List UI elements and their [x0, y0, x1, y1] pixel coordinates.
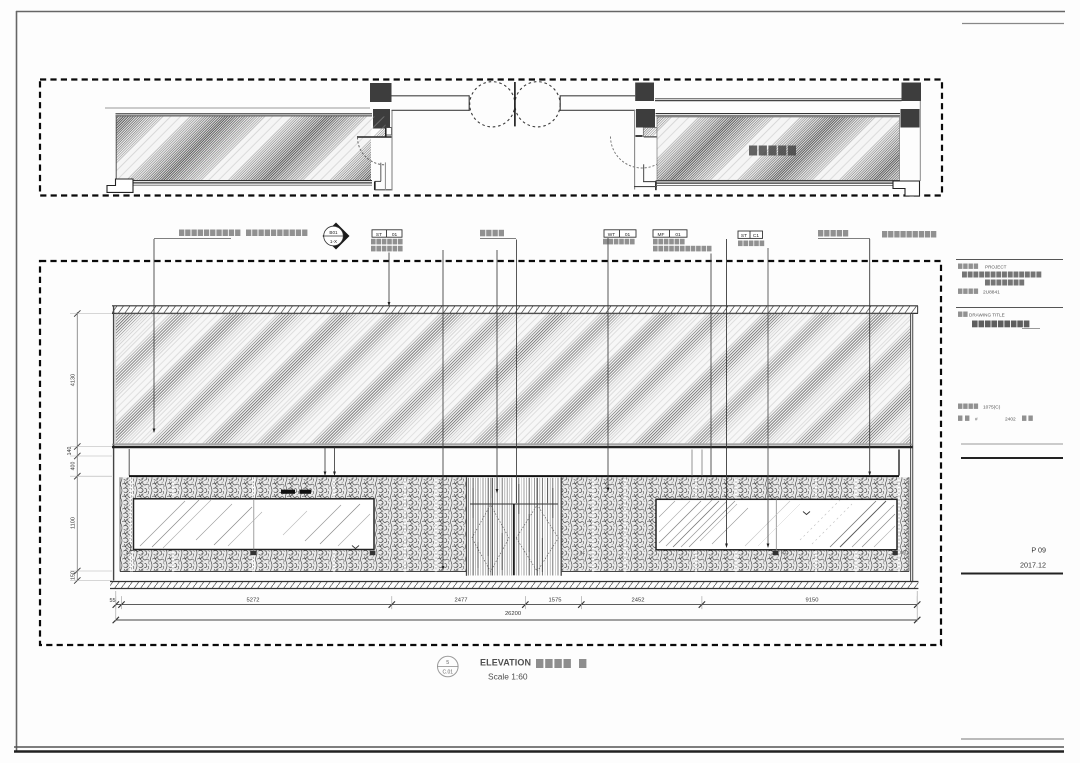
svg-text:C.01: C.01 [443, 670, 454, 676]
svg-text:C1: C1 [753, 233, 759, 239]
svg-text:01: 01 [392, 232, 398, 238]
svg-text:ST: ST [741, 233, 747, 239]
svg-text:150: 150 [71, 571, 77, 580]
svg-text:DRAWING TITLE: DRAWING TITLE [969, 312, 1005, 317]
svg-text:Scale 1:60: Scale 1:60 [488, 672, 528, 682]
svg-text:ELEVATION: ELEVATION [480, 658, 531, 668]
svg-text:1100: 1100 [71, 517, 77, 529]
svg-text:2017.12: 2017.12 [1020, 561, 1046, 570]
svg-text:01: 01 [675, 232, 681, 238]
svg-text:AL: AL [580, 550, 586, 555]
svg-text:N2: N2 [781, 550, 787, 555]
svg-text:2477: 2477 [455, 598, 468, 604]
svg-text:9M: 9M [900, 550, 906, 555]
svg-text:01: 01 [625, 232, 631, 238]
svg-text:140: 140 [67, 447, 73, 456]
svg-text:2402: 2402 [1005, 416, 1016, 422]
svg-text:WT: WT [608, 232, 616, 238]
svg-text:1-X: 1-X [330, 239, 337, 244]
svg-text:#: # [975, 416, 978, 422]
svg-text:2U8841: 2U8841 [983, 289, 1000, 295]
svg-text:ST: ST [376, 232, 382, 238]
svg-text:5272: 5272 [247, 598, 260, 604]
svg-text:MF: MF [658, 232, 665, 238]
svg-text:1075(C): 1075(C) [983, 404, 1001, 410]
svg-text:26200: 26200 [505, 611, 521, 617]
svg-text:4130: 4130 [71, 374, 77, 386]
svg-text:400: 400 [71, 462, 77, 471]
svg-text:5: 5 [446, 660, 449, 666]
svg-text:2452: 2452 [632, 598, 645, 604]
svg-text:P 09: P 09 [1031, 546, 1046, 555]
svg-text:B01: B01 [329, 230, 338, 235]
svg-text:4a: 4a [126, 550, 131, 555]
svg-text:55: 55 [110, 598, 116, 604]
svg-text:1575: 1575 [549, 598, 562, 604]
svg-text:PROJECT: PROJECT [985, 264, 1007, 269]
svg-text:9150: 9150 [806, 598, 819, 604]
